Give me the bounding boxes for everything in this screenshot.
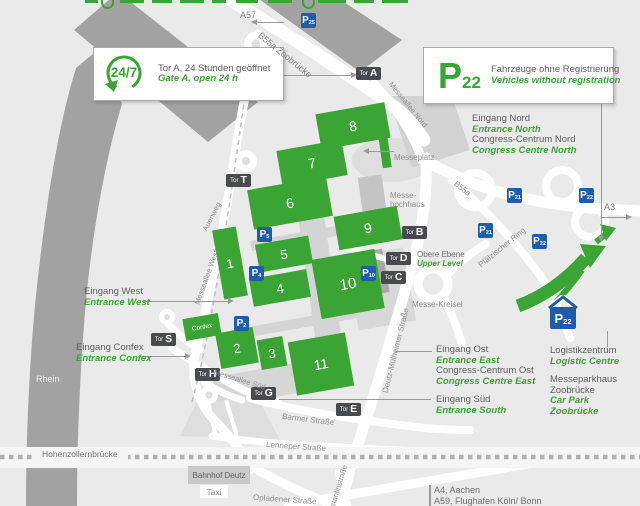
p-number: 5 xyxy=(266,234,269,240)
parking-p25-badge: P25 xyxy=(301,13,316,28)
p-number: 21 xyxy=(515,195,521,201)
a59-sign: A59, Flughafen Köln/ Bonn xyxy=(434,496,542,506)
messekreisel-label: Messe-Kreisel xyxy=(412,300,463,309)
no-registration-text-en: Vehicles without registration xyxy=(491,76,621,87)
leader-a3 xyxy=(602,217,626,218)
congress-east-en: Congress Centre East xyxy=(436,377,535,388)
hall-2-label: 2 xyxy=(232,340,242,356)
leader-entrance-west-arrow xyxy=(228,298,234,304)
gate-a-info-box: 24/7 Tor A, 24 Stunden geöffnet Gate A, … xyxy=(93,47,284,101)
entrance-confex-en: Entrance Confex xyxy=(76,354,152,365)
hall-5-label: 5 xyxy=(279,246,289,262)
p-number: 2 xyxy=(243,323,246,329)
taxi-stand: Taxi xyxy=(200,485,228,498)
24-7-label: 24/7 xyxy=(104,65,144,80)
hall-10: 10 xyxy=(311,249,384,319)
entrance-confex-block: Eingang Confex Entrance Confex xyxy=(76,343,152,364)
entrance-south-de: Eingang Süd xyxy=(436,395,506,406)
congress-north-de: Congress-Centrum Nord xyxy=(472,135,577,146)
gate-a-badge: TorA xyxy=(356,67,381,80)
p-number: 4 xyxy=(258,273,261,279)
carpark-de: Messeparkhaus Zoobrücke xyxy=(550,375,622,396)
leader-entrance-east xyxy=(396,351,432,352)
entrance-south-block: Eingang Süd Entrance South xyxy=(436,395,506,416)
cropped-heading-fragment xyxy=(318,0,346,3)
entrance-east-block: Eingang Ost Entrance East Congress-Centr… xyxy=(436,345,535,387)
hall-1-label: 1 xyxy=(225,255,235,271)
a57-sign: A57 xyxy=(240,10,256,20)
cropped-heading-fragment xyxy=(212,0,226,3)
cropped-heading-fragment xyxy=(382,0,408,3)
congress-east-de: Congress-Centrum Ost xyxy=(436,366,535,377)
hall-11: 11 xyxy=(288,332,354,395)
confex-label: Confex xyxy=(191,322,213,332)
hall-3-label: 3 xyxy=(267,345,277,361)
entrance-confex-de: Eingang Confex xyxy=(76,343,152,354)
p-number: 22 xyxy=(563,317,571,326)
p-number: 10 xyxy=(369,273,375,279)
gate-letter: T xyxy=(240,175,246,186)
leader-no-registration xyxy=(601,102,602,236)
p22-letter: P xyxy=(438,55,462,96)
p-letter: P xyxy=(479,226,486,236)
gate-prefix: Tor xyxy=(390,256,398,262)
parking-p22-badge: P22 xyxy=(532,234,547,249)
leader-entrance-west xyxy=(144,301,228,302)
p-number: 22 xyxy=(587,195,593,201)
gate-letter: B xyxy=(416,227,424,238)
p-letter: P xyxy=(302,16,309,26)
upper-level-de: Obere Ebene xyxy=(417,250,465,259)
garage-p-box: P 22 xyxy=(550,307,576,329)
parking-p5-badge: P5 xyxy=(257,227,272,242)
parking-p21-badge: P21 xyxy=(507,188,522,203)
p-number: 25 xyxy=(309,20,315,26)
entrance-west-en: Entrance West xyxy=(84,298,150,309)
p-letter: P xyxy=(533,237,540,247)
gate-letter: A xyxy=(370,68,378,79)
entrance-west-de: Eingang West xyxy=(84,287,150,298)
leader-messeplatz-arrow xyxy=(363,148,369,154)
messeplatz-label: Messeplatz xyxy=(394,153,434,162)
parking-p4-badge: P4 xyxy=(249,266,264,281)
parking-p21-badge: P21 xyxy=(478,223,493,238)
parking-p22-badge: P22 xyxy=(579,188,594,203)
hall-10-label: 10 xyxy=(338,274,357,294)
carpark-en: Car Park Zoobrücke xyxy=(550,396,622,417)
p-letter: P xyxy=(508,191,515,201)
gate-prefix: Tor xyxy=(360,71,368,77)
parking-p2-badge: P2 xyxy=(234,316,249,331)
gate-prefix: Tor xyxy=(340,407,348,413)
gate-d-badge: TorD xyxy=(386,252,411,265)
bahnhof-deutz-label: Bahnhof Deutz xyxy=(193,471,246,480)
cropped-heading-fragment xyxy=(152,0,172,3)
gate-prefix: Tor xyxy=(199,372,207,378)
a3-sign: A3 xyxy=(604,202,615,212)
logistics-de: Logistikzentrum xyxy=(550,346,619,357)
logistics-block: Logistikzentrum Logistic Centre xyxy=(550,346,619,367)
hall-11-label: 11 xyxy=(312,355,329,373)
p-letter: P xyxy=(362,269,369,279)
leader-entrance-south xyxy=(279,399,431,400)
hall-8-label: 8 xyxy=(348,117,358,134)
entrance-north-de: Eingang Nord xyxy=(472,114,577,125)
gate-prefix: Tor xyxy=(406,230,414,236)
leader-a3-arrow xyxy=(626,214,632,220)
gate-letter: D xyxy=(400,253,408,264)
cropped-heading-fragment xyxy=(180,0,204,3)
cropped-heading-fragment xyxy=(120,0,144,3)
cropped-heading-fragment xyxy=(85,0,98,3)
p22-green-icon: P22 xyxy=(438,58,481,94)
leader-a57 xyxy=(257,22,284,23)
p22-number: 22 xyxy=(462,73,481,92)
24-7-icon: 24/7 xyxy=(100,52,152,96)
carpark-block: Messeparkhaus Zoobrücke Car Park Zoobrüc… xyxy=(550,375,622,417)
rhein-label: Rhein xyxy=(36,374,60,384)
leader-no-registration-arrow xyxy=(598,236,604,242)
gate-prefix: Tor xyxy=(230,178,238,184)
cropped-heading-fragment xyxy=(236,0,258,3)
leader-motorway-sign xyxy=(429,485,431,506)
entrance-north-block: Eingang Nord Entrance North Congress-Cen… xyxy=(472,114,577,156)
koelnmesse-site-map: 8 7 6 9 5 1 4 10 2 3 11 Confex 24/7 Tor … xyxy=(0,0,640,506)
leader-entrance-confex-arrow xyxy=(185,353,191,359)
no-registration-info-box: P22 Fahrzeuge ohne Registrierung Vehicle… xyxy=(423,47,614,104)
leader-gate-a xyxy=(283,75,351,76)
hall-9-label: 9 xyxy=(363,219,373,236)
entrance-south-en: Entrance South xyxy=(436,406,506,417)
no-registration-text-de: Fahrzeuge ohne Registrierung xyxy=(491,65,621,76)
gate-prefix: Tor xyxy=(254,391,262,397)
hall-4-label: 4 xyxy=(275,280,285,296)
gate-t-badge: TorT xyxy=(226,174,251,187)
hall-6-label: 6 xyxy=(285,194,295,211)
hall-2: 2 xyxy=(215,327,259,369)
gate-letter: C xyxy=(395,272,403,283)
a4-sign: A4, Aachen xyxy=(434,485,542,496)
gate-letter: E xyxy=(350,404,357,415)
bahnhof-deutz-building: Bahnhof Deutz xyxy=(188,466,250,484)
carpark-p22-garage-badge: P 22 xyxy=(546,295,580,331)
p-number: 22 xyxy=(540,241,546,247)
gate-a-text-en: Gate A, open 24 h xyxy=(158,74,270,85)
messehochhaus-label: Messe-hochhaus xyxy=(390,191,432,209)
entrance-west-block: Eingang West Entrance West xyxy=(84,287,150,308)
entrance-east-de: Eingang Ost xyxy=(436,345,535,356)
p-letter: P xyxy=(237,319,244,329)
gate-prefix: Tor xyxy=(385,275,393,281)
p-number: 21 xyxy=(486,230,492,236)
gate-prefix: Tor xyxy=(155,337,163,343)
p-letter: P xyxy=(580,191,587,201)
parking-p10-badge: P10 xyxy=(361,266,376,281)
gate-c-badge: TorC xyxy=(381,271,406,284)
hall-7-label: 7 xyxy=(307,154,317,171)
gate-s-badge: TorS xyxy=(151,333,176,346)
logistics-en: Logistic Centre xyxy=(550,357,619,368)
leader-messeplatz xyxy=(369,151,394,152)
upper-level-block: Obere Ebene Upper Level xyxy=(417,250,465,268)
gate-b-badge: TorB xyxy=(402,226,427,239)
hall-3: 3 xyxy=(257,336,288,370)
cropped-heading-fragment xyxy=(354,0,374,3)
motorway-sign-block: A4, Aachen A59, Flughafen Köln/ Bonn xyxy=(434,485,542,506)
gate-letter: S xyxy=(165,334,172,345)
gate-letter: G xyxy=(265,388,273,399)
congress-north-en: Congress Centre North xyxy=(472,146,577,157)
p-letter: P xyxy=(260,230,267,240)
p-letter: P xyxy=(252,269,259,279)
upper-level-en: Upper Level xyxy=(417,259,465,268)
p-letter: P xyxy=(554,312,563,325)
hohenzollernbruecke-label: Hohenzollernbrücke xyxy=(42,449,118,459)
taxi-label: Taxi xyxy=(206,487,221,497)
cropped-heading-fragment xyxy=(268,0,292,3)
gate-e-badge: TorE xyxy=(336,403,361,416)
